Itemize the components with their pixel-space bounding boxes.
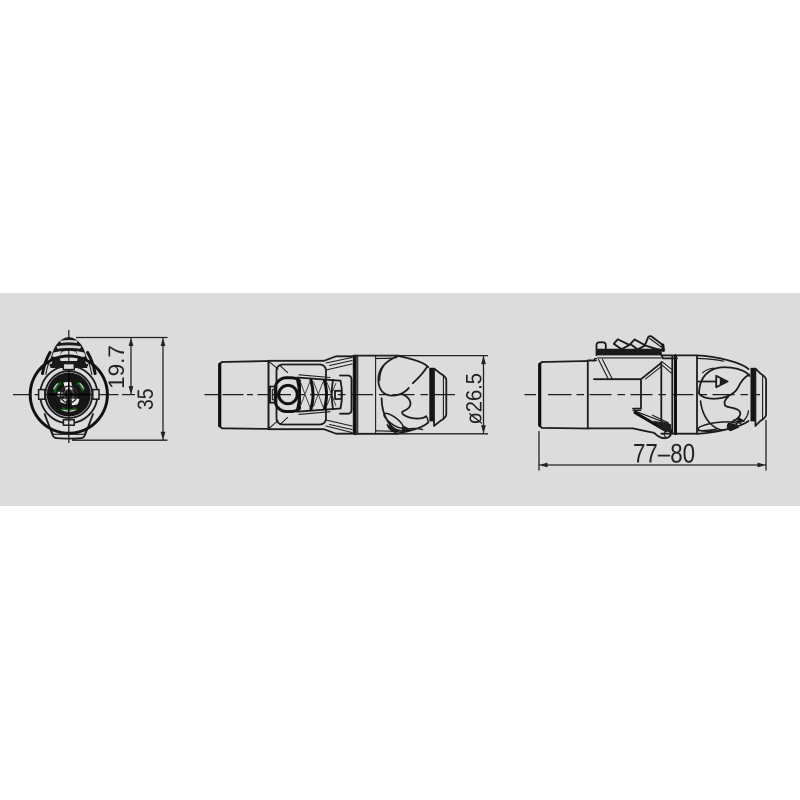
svg-text:ø26.5: ø26.5 [462,373,487,425]
svg-text:77–80: 77–80 [633,439,695,469]
svg-text:35: 35 [133,389,158,411]
svg-text:19.7: 19.7 [104,345,129,389]
